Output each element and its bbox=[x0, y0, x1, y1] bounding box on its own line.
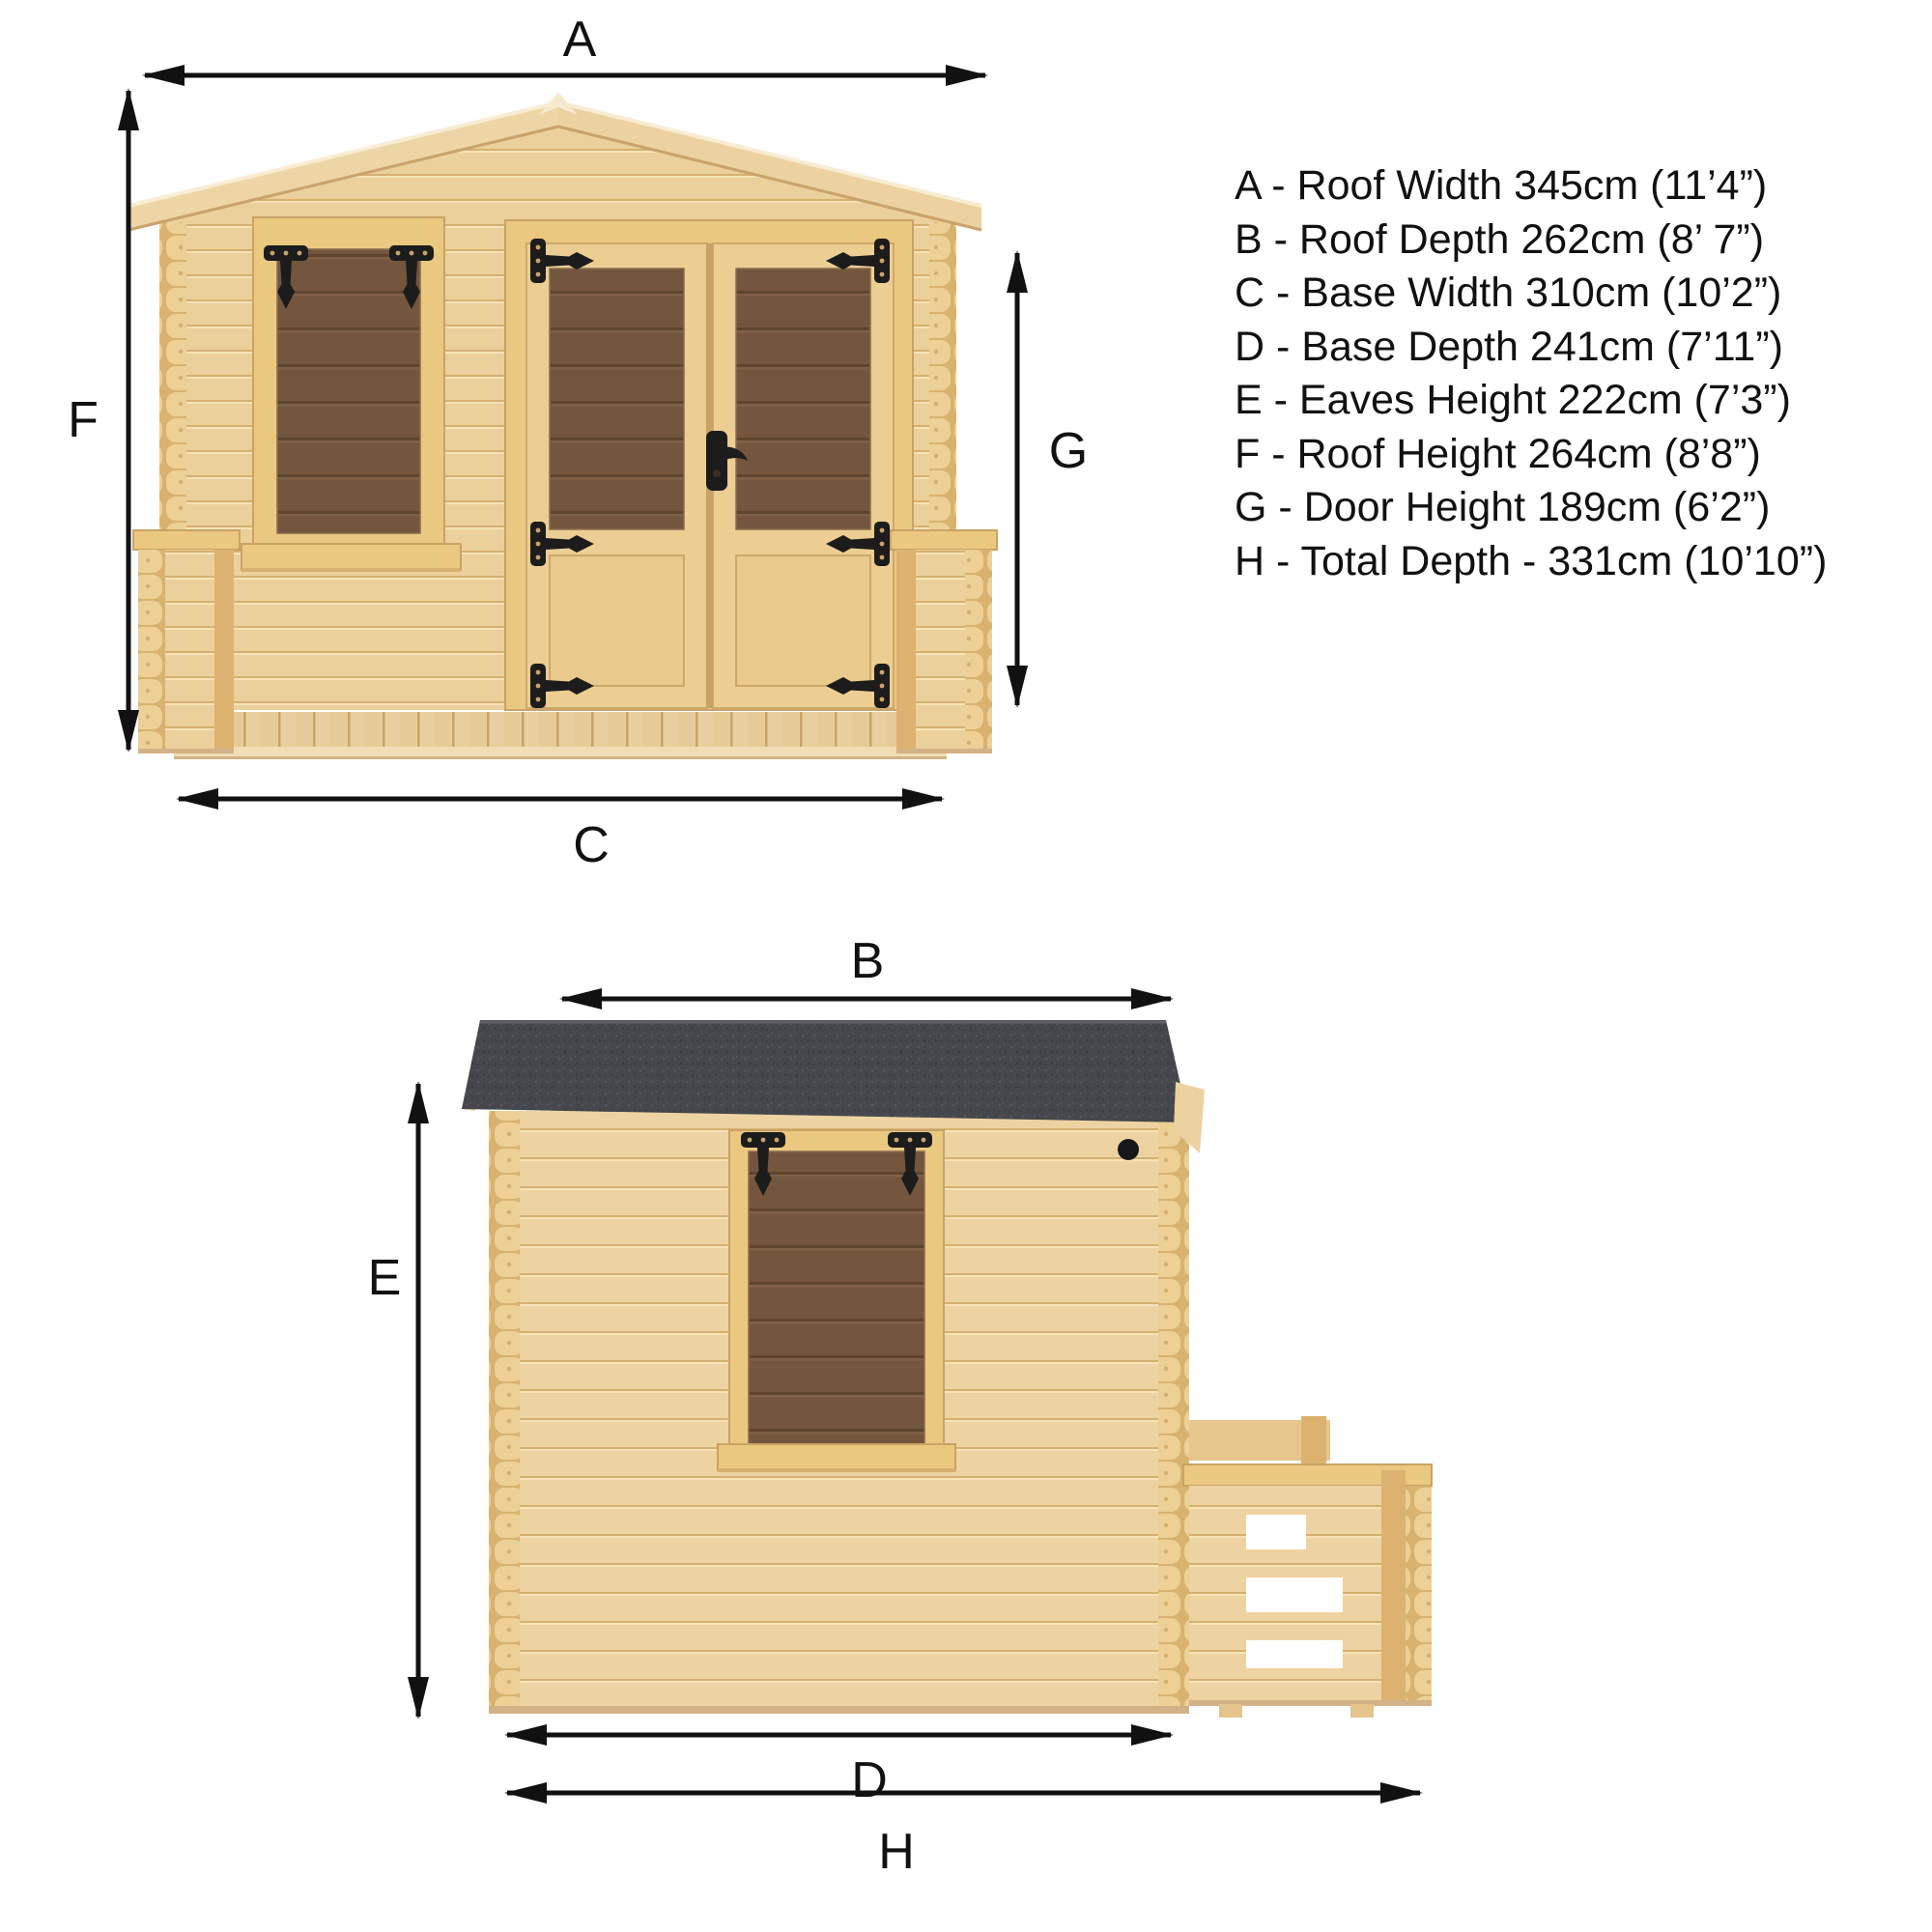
left-planter-shadow bbox=[138, 749, 234, 753]
diagram-page: A F G C A - Roof Width 345cm (11’4”) B -… bbox=[0, 0, 1932, 1932]
right-planter-cap bbox=[891, 530, 997, 550]
side-wall-left-log-ends bbox=[489, 1111, 520, 1712]
right-planter-post bbox=[896, 550, 916, 753]
dimension-d: D bbox=[507, 1735, 1171, 1808]
veranda-corner-post bbox=[1381, 1470, 1406, 1705]
dimension-f: F bbox=[68, 91, 128, 750]
left-planter-cap bbox=[133, 530, 240, 550]
side-wall-right-log-ends bbox=[1158, 1122, 1189, 1712]
front-deck-boards bbox=[179, 712, 942, 747]
dimension-b: B bbox=[562, 933, 1171, 999]
front-right-planter bbox=[891, 530, 997, 753]
legend-item: B - Roof Depth 262cm (8’ 7”) bbox=[1235, 216, 1764, 263]
front-door-right-glass bbox=[736, 269, 870, 529]
side-wall-base-shadow bbox=[489, 1706, 1189, 1714]
legend-item: C - Base Width 310cm (10’2”) bbox=[1235, 270, 1781, 316]
front-left-planter bbox=[133, 530, 240, 753]
front-window-sill bbox=[241, 544, 461, 570]
dimension-a: A bbox=[145, 12, 985, 75]
front-door-left-panel bbox=[550, 555, 684, 686]
front-deck-edge bbox=[174, 747, 947, 756]
legend-item: H - Total Depth - 331cm (10’10”) bbox=[1235, 538, 1827, 584]
cabin-dimension-diagram: A F G C A - Roof Width 345cm (11’4”) B -… bbox=[0, 0, 1932, 1932]
front-window-glass bbox=[277, 249, 420, 533]
legend-item: A - Roof Width 345cm (11’4”) bbox=[1235, 162, 1767, 209]
legend-item: D - Base Depth 241cm (7’11”) bbox=[1235, 324, 1783, 370]
dimension-g: G bbox=[1017, 253, 1088, 705]
dimension-label-d: D bbox=[851, 1752, 888, 1808]
front-view: A F G C bbox=[68, 12, 1088, 873]
dimension-h: H bbox=[507, 1793, 1420, 1880]
front-deck bbox=[174, 712, 947, 759]
front-doors bbox=[505, 220, 913, 710]
veranda-log-ends bbox=[1406, 1486, 1432, 1705]
side-view: B E D H bbox=[368, 933, 1432, 1880]
vent-hole-icon bbox=[1118, 1139, 1139, 1160]
veranda-foot bbox=[1350, 1704, 1374, 1718]
side-window bbox=[718, 1130, 955, 1472]
left-planter-post bbox=[214, 550, 234, 753]
dimension-label-h: H bbox=[878, 1824, 915, 1880]
legend-item: G - Door Height 189cm (6’2”) bbox=[1235, 484, 1770, 530]
right-planter-shadow bbox=[896, 749, 992, 753]
legend-item: F - Roof Height 264cm (8’8”) bbox=[1235, 431, 1761, 477]
veranda-foot bbox=[1219, 1704, 1242, 1718]
veranda-rail-gap bbox=[1246, 1577, 1343, 1612]
legend-item: E - Eaves Height 222cm (7’3”) bbox=[1235, 377, 1791, 423]
legend: A - Roof Width 345cm (11’4”) B - Roof De… bbox=[1235, 162, 1827, 584]
right-planter-log-ends bbox=[965, 550, 992, 753]
dimension-label-b: B bbox=[851, 933, 885, 989]
front-window bbox=[241, 217, 461, 572]
side-veranda bbox=[1183, 1416, 1432, 1718]
dimension-label-e: E bbox=[368, 1250, 402, 1306]
side-window-sill-shadow bbox=[718, 1468, 955, 1472]
dimension-label-a: A bbox=[563, 12, 597, 68]
dimension-label-c: C bbox=[573, 817, 610, 873]
dimension-label-f: F bbox=[68, 392, 99, 448]
side-roof-felt bbox=[462, 1020, 1189, 1122]
dimension-e: E bbox=[368, 1084, 418, 1717]
left-planter-log-ends bbox=[138, 550, 165, 753]
front-deck-shadow bbox=[174, 756, 947, 759]
front-window-sill-shadow bbox=[241, 568, 461, 572]
front-door-left-glass bbox=[550, 269, 684, 529]
veranda-rail-gap bbox=[1246, 1640, 1343, 1668]
dimension-c: C bbox=[179, 799, 942, 873]
side-window-sill bbox=[718, 1444, 955, 1470]
front-door-right-panel bbox=[736, 555, 870, 686]
side-window-glass bbox=[749, 1151, 924, 1444]
dimension-label-g: G bbox=[1049, 423, 1088, 479]
veranda-rail-gap bbox=[1246, 1515, 1306, 1549]
